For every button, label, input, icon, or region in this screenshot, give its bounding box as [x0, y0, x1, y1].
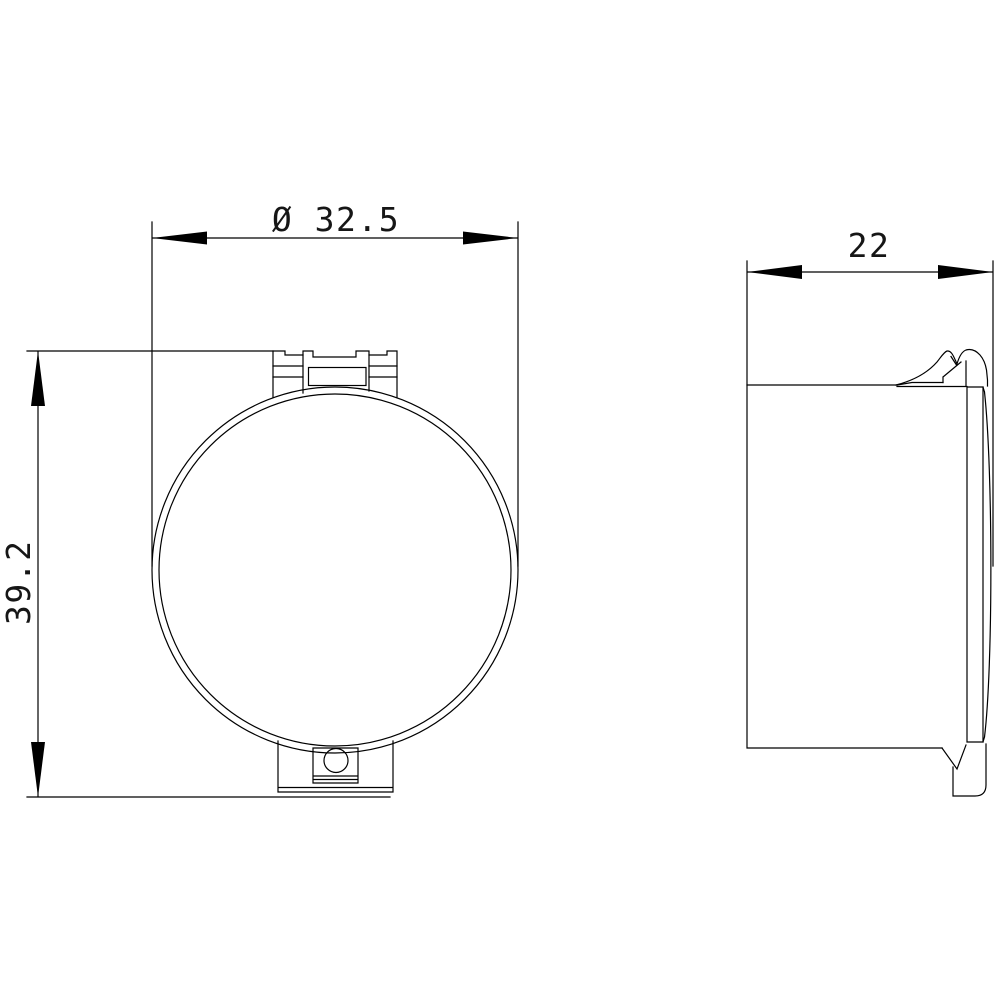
front-view: [152, 351, 518, 792]
dim-depth-lines: [747, 261, 993, 566]
hinge-lip: [897, 383, 967, 387]
hinge-front: [273, 351, 397, 397]
cover-outer-circle: [152, 387, 518, 753]
side-body: [747, 385, 942, 748]
padlock-tab-side: [942, 744, 986, 796]
dim-height-label: 39.2: [0, 540, 38, 625]
cover-face-arc: [983, 387, 991, 742]
cover-flange-side: [967, 387, 991, 742]
arrow-right-icon: [463, 232, 518, 245]
arrow-left-icon: [747, 265, 802, 279]
arrow-up-icon: [31, 351, 45, 406]
hinge-outline: [273, 351, 397, 397]
arrow-left-icon: [152, 232, 207, 245]
dim-diameter: Ø 32.5: [152, 200, 518, 566]
dim-diameter-label: Ø 32.5: [272, 200, 400, 239]
flange-strip: [967, 387, 983, 742]
arrow-down-icon: [31, 742, 45, 797]
drawing-canvas: Ø 32.5 39.2 22: [0, 0, 1000, 1000]
hinge-side: [896, 350, 988, 387]
dim-height: 39.2: [0, 351, 390, 797]
hinge-bracket: [943, 357, 966, 387]
arrow-right-icon: [938, 265, 993, 279]
padlock-hole: [324, 749, 348, 773]
hinge-crest: [896, 350, 988, 386]
side-view: [747, 350, 991, 796]
cover-inner-circle: [159, 394, 511, 746]
dim-depth: 22: [747, 226, 993, 566]
hinge-pin-housing: [309, 368, 367, 386]
tab-profile: [953, 744, 986, 796]
tab-notch: [942, 745, 966, 769]
dim-height-lines: [27, 351, 390, 797]
technical-drawing: Ø 32.5 39.2 22: [0, 0, 1000, 1000]
dim-depth-label: 22: [848, 226, 891, 265]
